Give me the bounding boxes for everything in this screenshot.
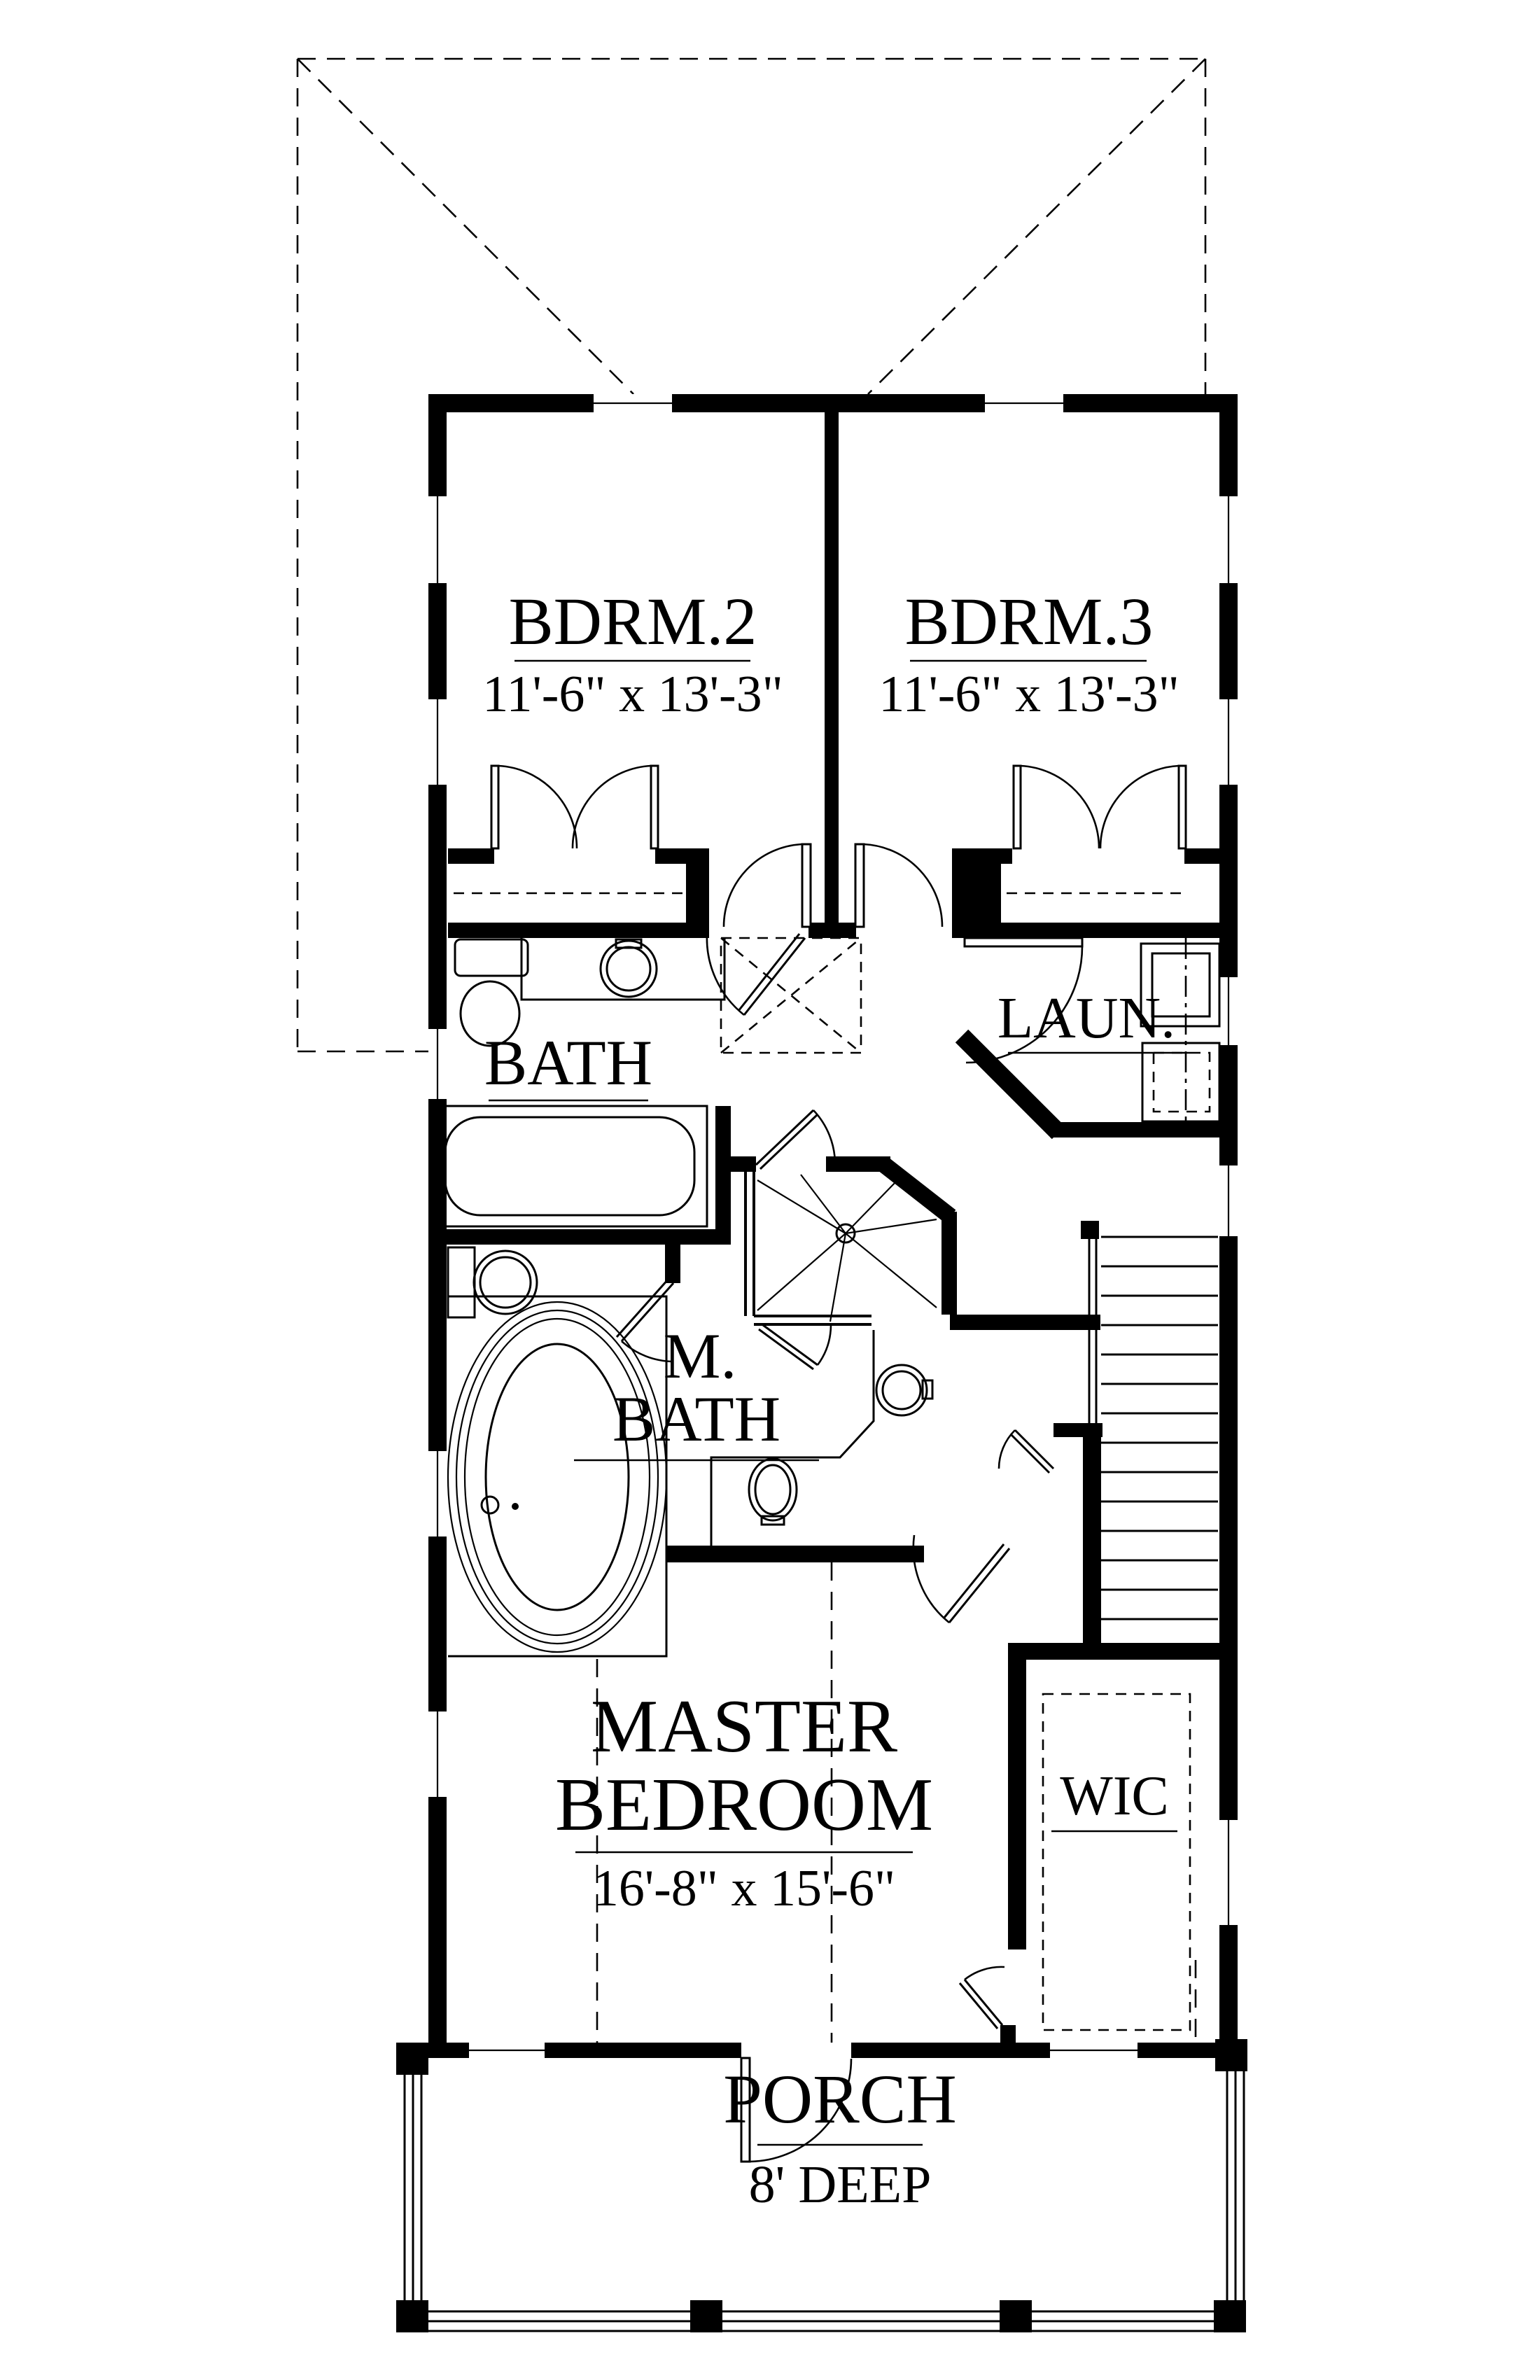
master-entry-door [913,1535,1009,1623]
closet-doors-bdrm2 [491,766,658,848]
room-label-master-line1: MASTER [591,1685,897,1768]
laundry-bottom-wall [1050,1122,1219,1137]
room-label-laundry: LAUN. [997,986,1175,1051]
shower-side-wall [941,1212,957,1315]
vanity-sink [876,1365,927,1415]
toilet-nook-wall [665,1245,680,1283]
porch-door-opening [741,2043,851,2058]
bdrm2-entry-door [724,844,811,927]
window [428,1029,447,1099]
room-label-bdrm2: BDRM.2 [509,584,757,659]
room-label-porch: PORCH [723,2060,956,2138]
mbath-master-wall [666,1546,924,1562]
window [1219,977,1238,1045]
mbath-angled-wall [883,1164,951,1217]
room-label-bath: BATH [484,1027,652,1098]
floor-plan-canvas: BDRM.2 11'-6" x 13'-3" BDRM.3 11'-6" x 1… [0,0,1540,2380]
window [1219,699,1238,785]
room-label-mbath-line2: BATH [612,1383,780,1455]
room-dims-master: 16'-8" x 15'-6" [593,1860,895,1917]
shower [745,1172,937,1324]
window [1050,2043,1137,2058]
room-dims-porch: 8' DEEP [749,2155,932,2214]
porch-post [690,2300,722,2332]
window [594,394,672,412]
soaking-tub [448,1302,666,1652]
bdrm3-entry-door [855,844,942,927]
wic-door [960,1967,1004,2029]
window [985,394,1063,412]
window [1219,1165,1238,1236]
wic-left-wall [1008,1660,1026,1949]
room-dims-bdrm2: 11'-6" x 13'-3" [482,666,783,723]
newel-post [1081,1221,1099,1239]
room-label-mbath-line1: M. [664,1320,737,1392]
bath-vanity [521,938,724,1000]
floor-plan-page: BDRM.2 11'-6" x 13'-3" BDRM.3 11'-6" x 1… [0,0,1540,2380]
mbath-toilet [448,1247,537,1317]
tub-drain [482,1497,498,1513]
wall-top [428,394,1238,412]
bedroom-divider-wall [825,412,839,923]
window [1219,1820,1238,1925]
window [1219,496,1238,583]
porch-post [396,2043,428,2075]
room-dims-bdrm3: 11'-6" x 13'-3" [878,666,1179,723]
closet-doors-bdrm3 [1014,766,1186,848]
hall-stair-door [999,1430,1053,1473]
room-label-bdrm3: BDRM.3 [905,584,1154,659]
porch-post [396,2300,428,2332]
shower-door [759,1325,831,1369]
wic-top-wall [1008,1643,1219,1660]
window [469,2043,545,2058]
mbath-entry-door [756,1110,835,1169]
porch-post [1214,2300,1246,2332]
stair-side-wall [1083,1437,1101,1648]
porch-post [1215,2039,1247,2071]
wic-shelving [1043,1694,1190,2030]
window [428,1711,447,1797]
window [428,496,447,583]
bath-bottom-wall [428,1229,731,1245]
bath-sink [601,941,657,997]
porch-post [1000,2300,1032,2332]
room-label-wic: WIC [1060,1765,1169,1827]
window [428,699,447,785]
bathtub [433,1106,707,1226]
room-label-master-line2: BEDROOM [555,1763,933,1847]
window [428,1451,447,1536]
